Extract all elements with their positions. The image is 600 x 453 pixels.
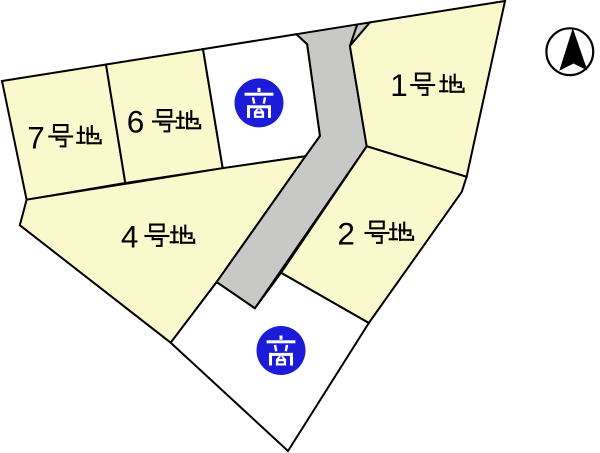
svg-text:4: 4	[121, 218, 139, 254]
svg-text:1: 1	[390, 67, 408, 103]
svg-text:2: 2	[337, 216, 355, 252]
svg-text:7: 7	[27, 119, 45, 155]
svg-text:6: 6	[127, 103, 145, 139]
